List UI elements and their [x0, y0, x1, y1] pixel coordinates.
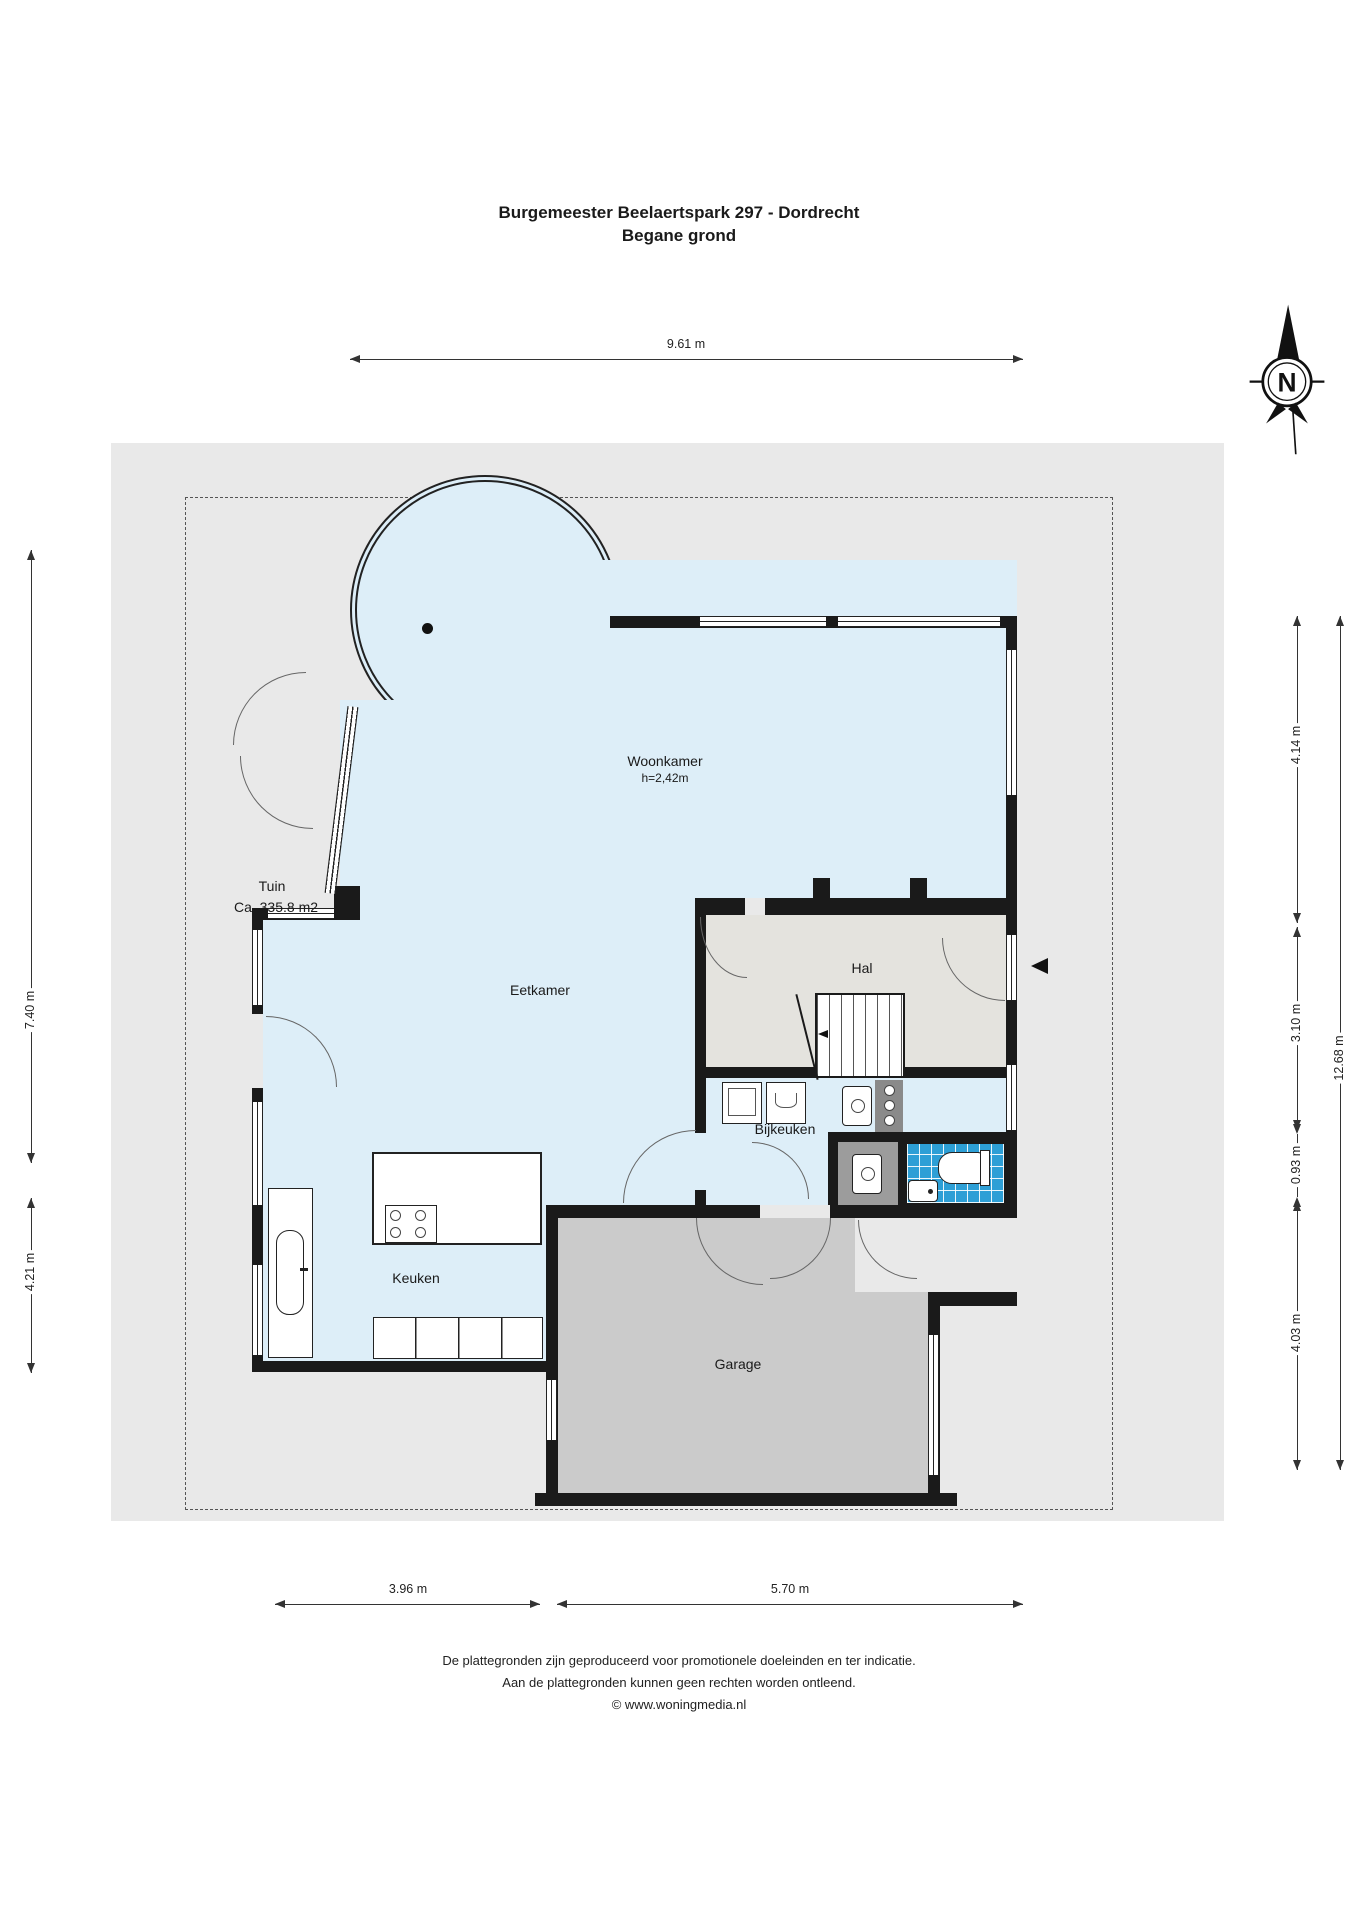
wall-hal-top-b	[765, 898, 1017, 915]
boiler-icon	[842, 1086, 872, 1126]
toilet-cistern	[980, 1150, 990, 1186]
window-right-a	[1006, 650, 1017, 795]
keuken-label: Keuken	[392, 1270, 439, 1286]
stairs-direction-arrow	[818, 1030, 828, 1038]
window-left-a	[252, 930, 263, 1005]
svg-text:N: N	[1277, 368, 1296, 398]
woonkamer-height-note: h=2,42m	[641, 771, 688, 785]
burner-icon	[390, 1210, 401, 1221]
wall-stub-a	[813, 878, 830, 900]
garage-label: Garage	[715, 1356, 762, 1372]
tuin-label: Tuin	[259, 878, 286, 894]
wall-stub-b	[910, 878, 927, 900]
window-top-b	[838, 616, 1000, 627]
page-title: Burgemeester Beelaertspark 297 - Dordrec…	[499, 203, 860, 223]
faucet-icon	[300, 1268, 308, 1271]
compass-icon: N	[1232, 300, 1342, 460]
wall-garage-top-b	[830, 1205, 1017, 1218]
footer-line1: De plattegronden zijn geproduceerd voor …	[442, 1653, 915, 1668]
counter-bottom	[373, 1317, 543, 1359]
column-dot	[422, 623, 433, 634]
wall-toilet-left	[828, 1132, 838, 1205]
footer-line3: © www.woningmedia.nl	[612, 1697, 747, 1712]
burner-icon	[415, 1227, 426, 1238]
woonkamer-label: Woonkamer	[627, 753, 702, 769]
page-subtitle: Begane grond	[622, 226, 736, 246]
wall-keuken-bottom	[252, 1361, 558, 1372]
utility-sink-icon	[722, 1082, 762, 1124]
meter-cabinet	[875, 1080, 903, 1132]
window-garage-right	[928, 1335, 939, 1475]
entry-arrow-icon	[1031, 958, 1048, 974]
window-garage-left	[546, 1380, 557, 1440]
eetkamer-label: Eetkamer	[510, 982, 570, 998]
wall-bay-anchor	[334, 886, 360, 920]
burner-icon	[390, 1227, 401, 1238]
washer-icon	[766, 1082, 806, 1124]
window-left-b	[252, 1102, 263, 1205]
footer-line2: Aan de plattegronden kunnen geen rechten…	[502, 1675, 855, 1690]
wall-toilet-top	[828, 1132, 1017, 1142]
burner-icon	[415, 1210, 426, 1221]
window-right-b	[1006, 1065, 1017, 1130]
wall-garage-top-a	[546, 1205, 760, 1218]
wall-divider-upper	[695, 915, 706, 1133]
wall-toilet-divider	[898, 1142, 905, 1205]
wall-garage-bottom	[535, 1493, 957, 1506]
bijkeuken-label: Bijkeuken	[755, 1121, 816, 1137]
wall-garage-left	[546, 1205, 558, 1493]
floorplan-page: Burgemeester Beelaertspark 297 - Dordrec…	[0, 0, 1358, 1920]
window-top-a	[700, 616, 826, 627]
entry-door	[1006, 935, 1017, 1000]
closet	[838, 1142, 898, 1205]
wall-hal-top-a	[695, 898, 745, 915]
washbasin-icon	[908, 1180, 938, 1202]
hal-label: Hal	[851, 960, 872, 976]
stairs	[815, 993, 905, 1078]
toilet-icon	[938, 1152, 984, 1184]
tuin-area-note: Ca. 335.8 m2	[234, 899, 318, 915]
window-left-c	[252, 1265, 263, 1355]
sink-icon	[276, 1230, 304, 1315]
wall-garage-step	[928, 1292, 1017, 1306]
